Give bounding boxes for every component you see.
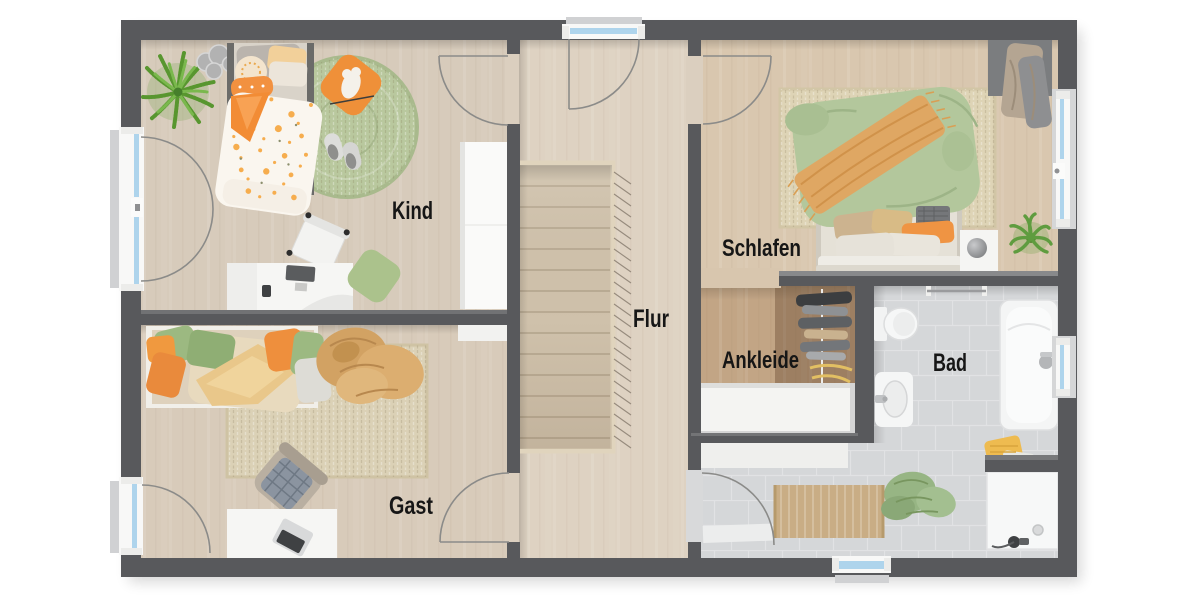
- svg-text:Schlafen: Schlafen: [722, 235, 801, 262]
- svg-text:Gast: Gast: [389, 492, 434, 520]
- svg-text:Ankleide: Ankleide: [722, 347, 799, 374]
- svg-text:Kind: Kind: [392, 197, 433, 225]
- svg-text:Bad: Bad: [933, 349, 967, 377]
- svg-text:Flur: Flur: [633, 305, 669, 333]
